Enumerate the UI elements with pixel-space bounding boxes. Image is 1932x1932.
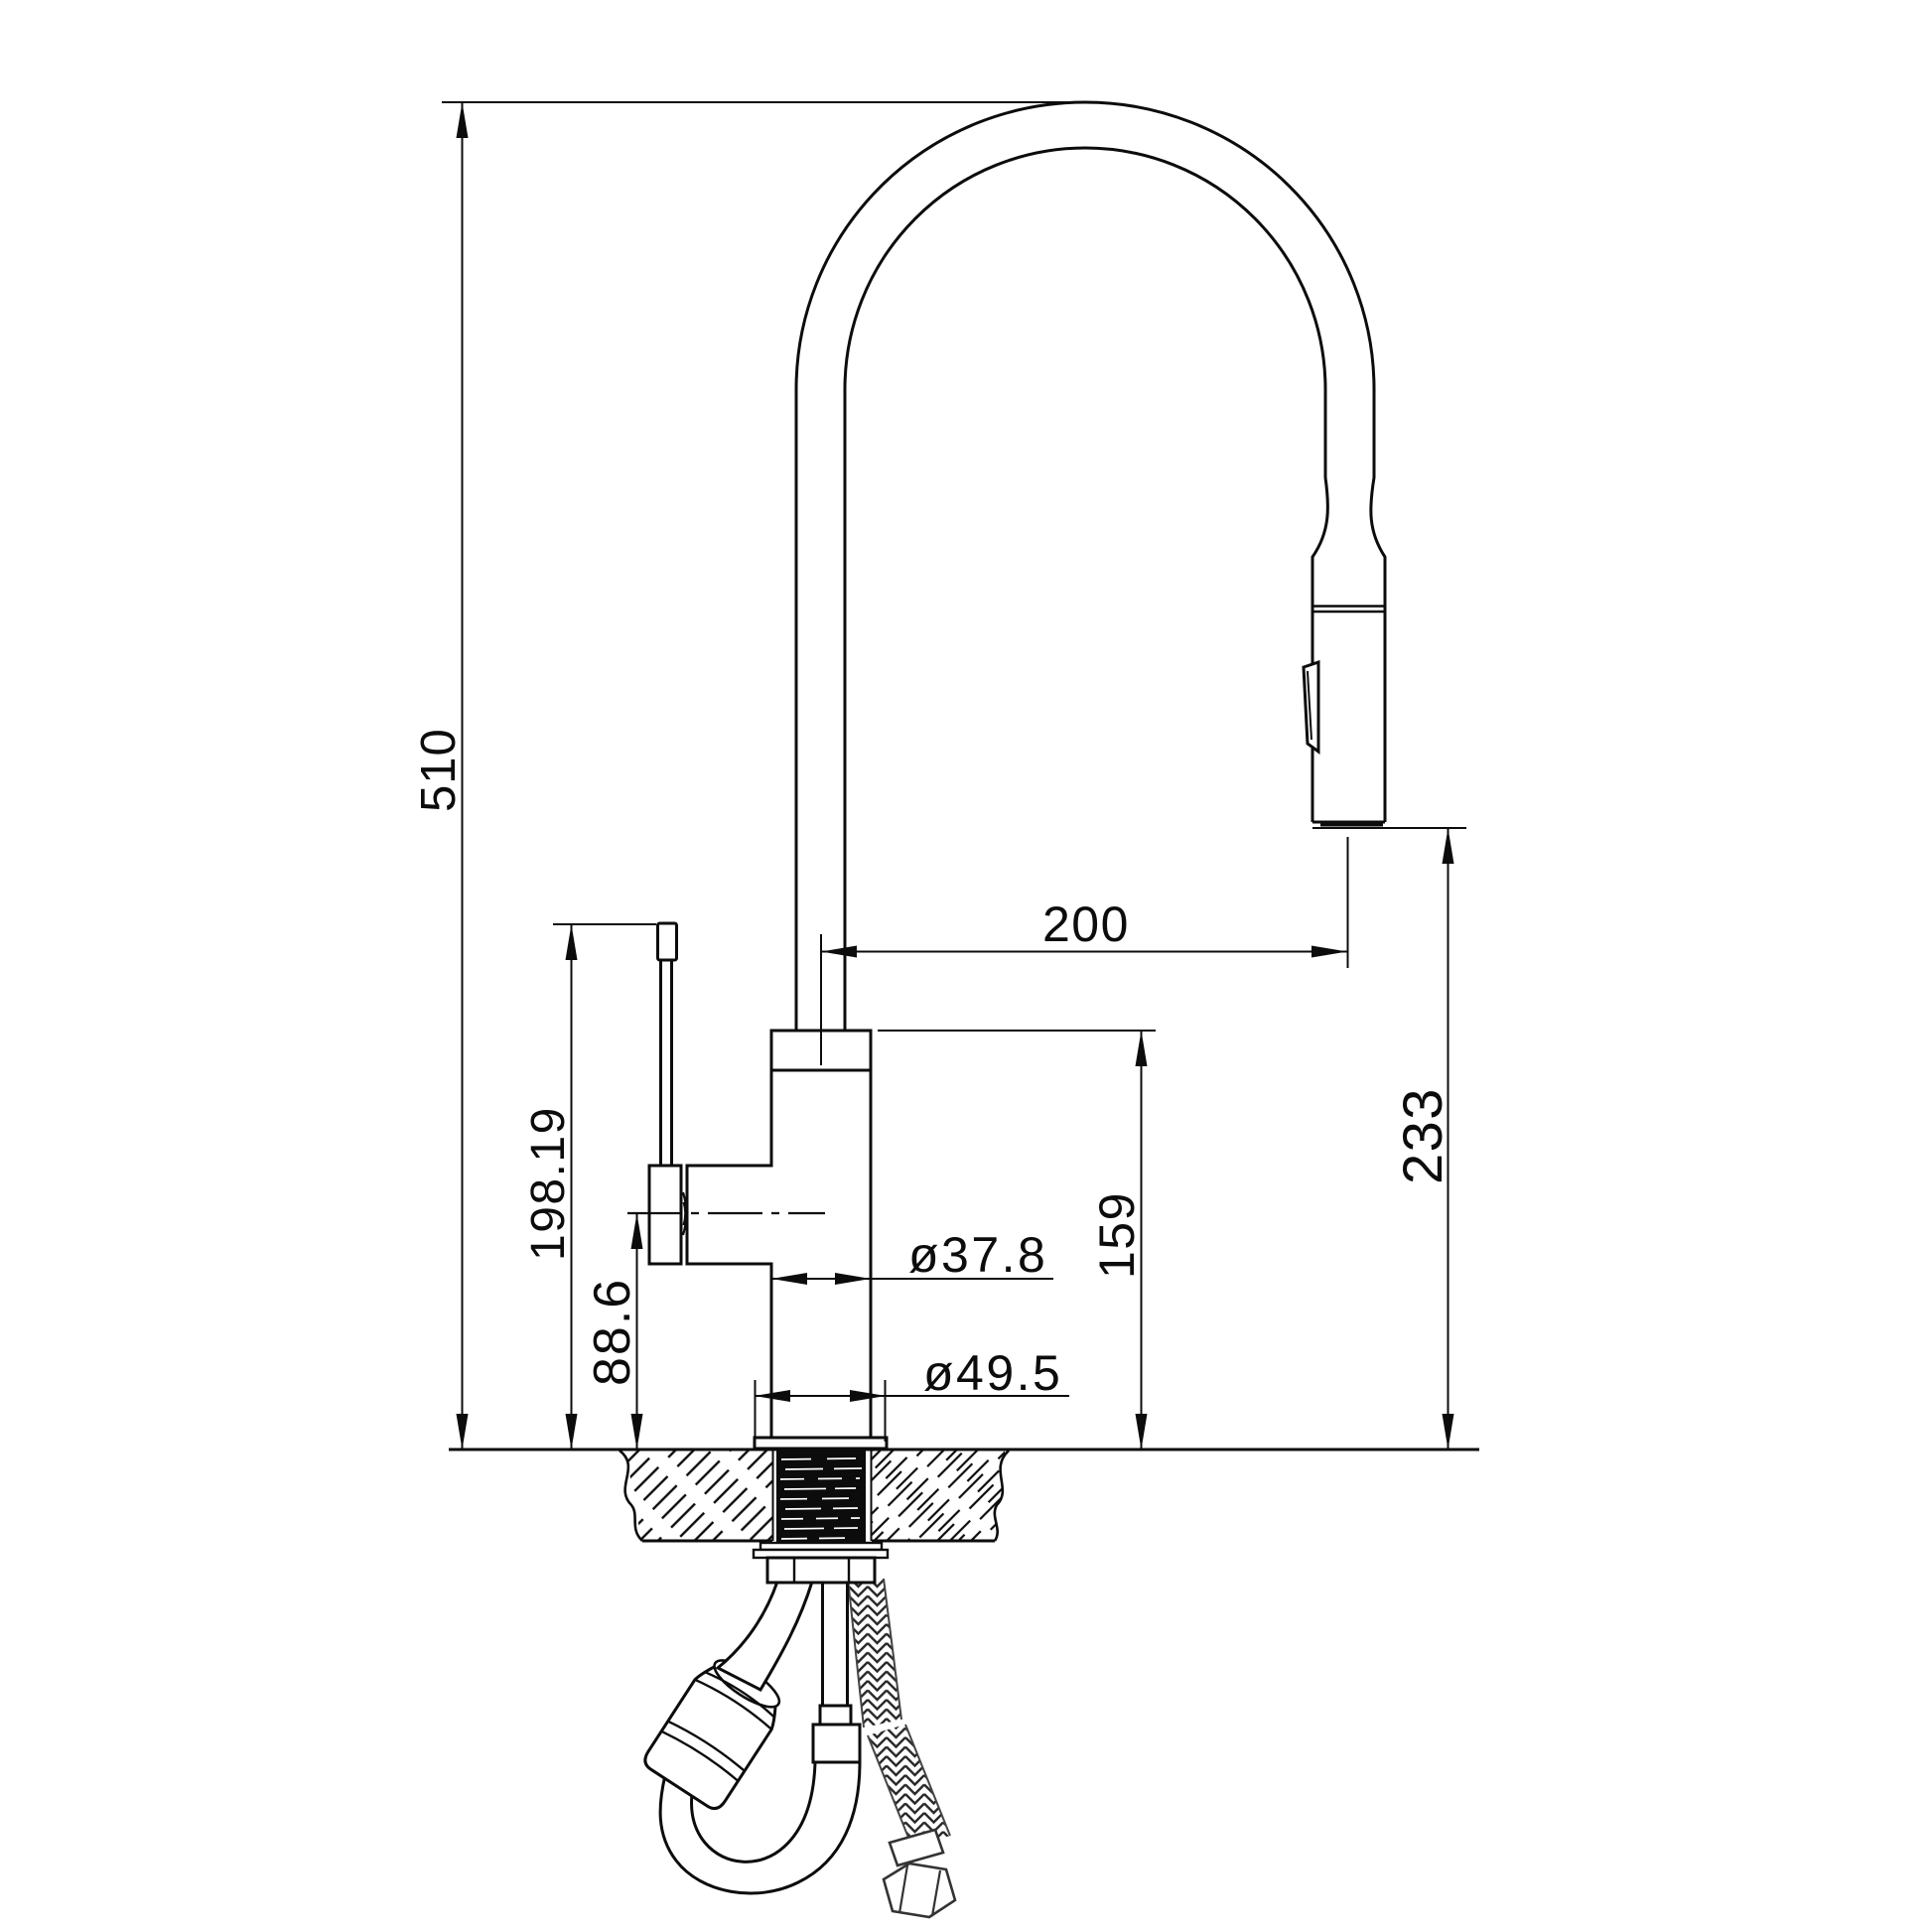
svg-text:ø37.8: ø37.8: [908, 1227, 1047, 1283]
svg-text:510: 510: [412, 728, 466, 812]
svg-text:233: 233: [1391, 1087, 1453, 1184]
svg-text:200: 200: [1042, 897, 1130, 952]
svg-text:ø49.5: ø49.5: [923, 1345, 1062, 1401]
svg-text:88.6: 88.6: [584, 1278, 641, 1386]
svg-text:198.19: 198.19: [522, 1106, 575, 1261]
svg-text:159: 159: [1089, 1191, 1145, 1279]
